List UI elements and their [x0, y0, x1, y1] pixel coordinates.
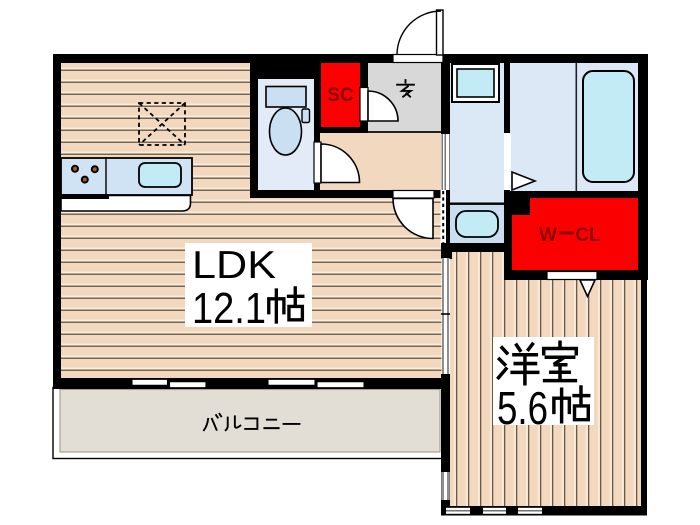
- svg-text:LDK: LDK: [192, 244, 276, 287]
- svg-text:CL: CL: [575, 225, 601, 246]
- svg-text:5.6: 5.6: [497, 382, 548, 434]
- svg-text:SC: SC: [327, 85, 354, 106]
- svg-text:W: W: [539, 225, 557, 246]
- svg-text:12.1: 12.1: [192, 284, 266, 333]
